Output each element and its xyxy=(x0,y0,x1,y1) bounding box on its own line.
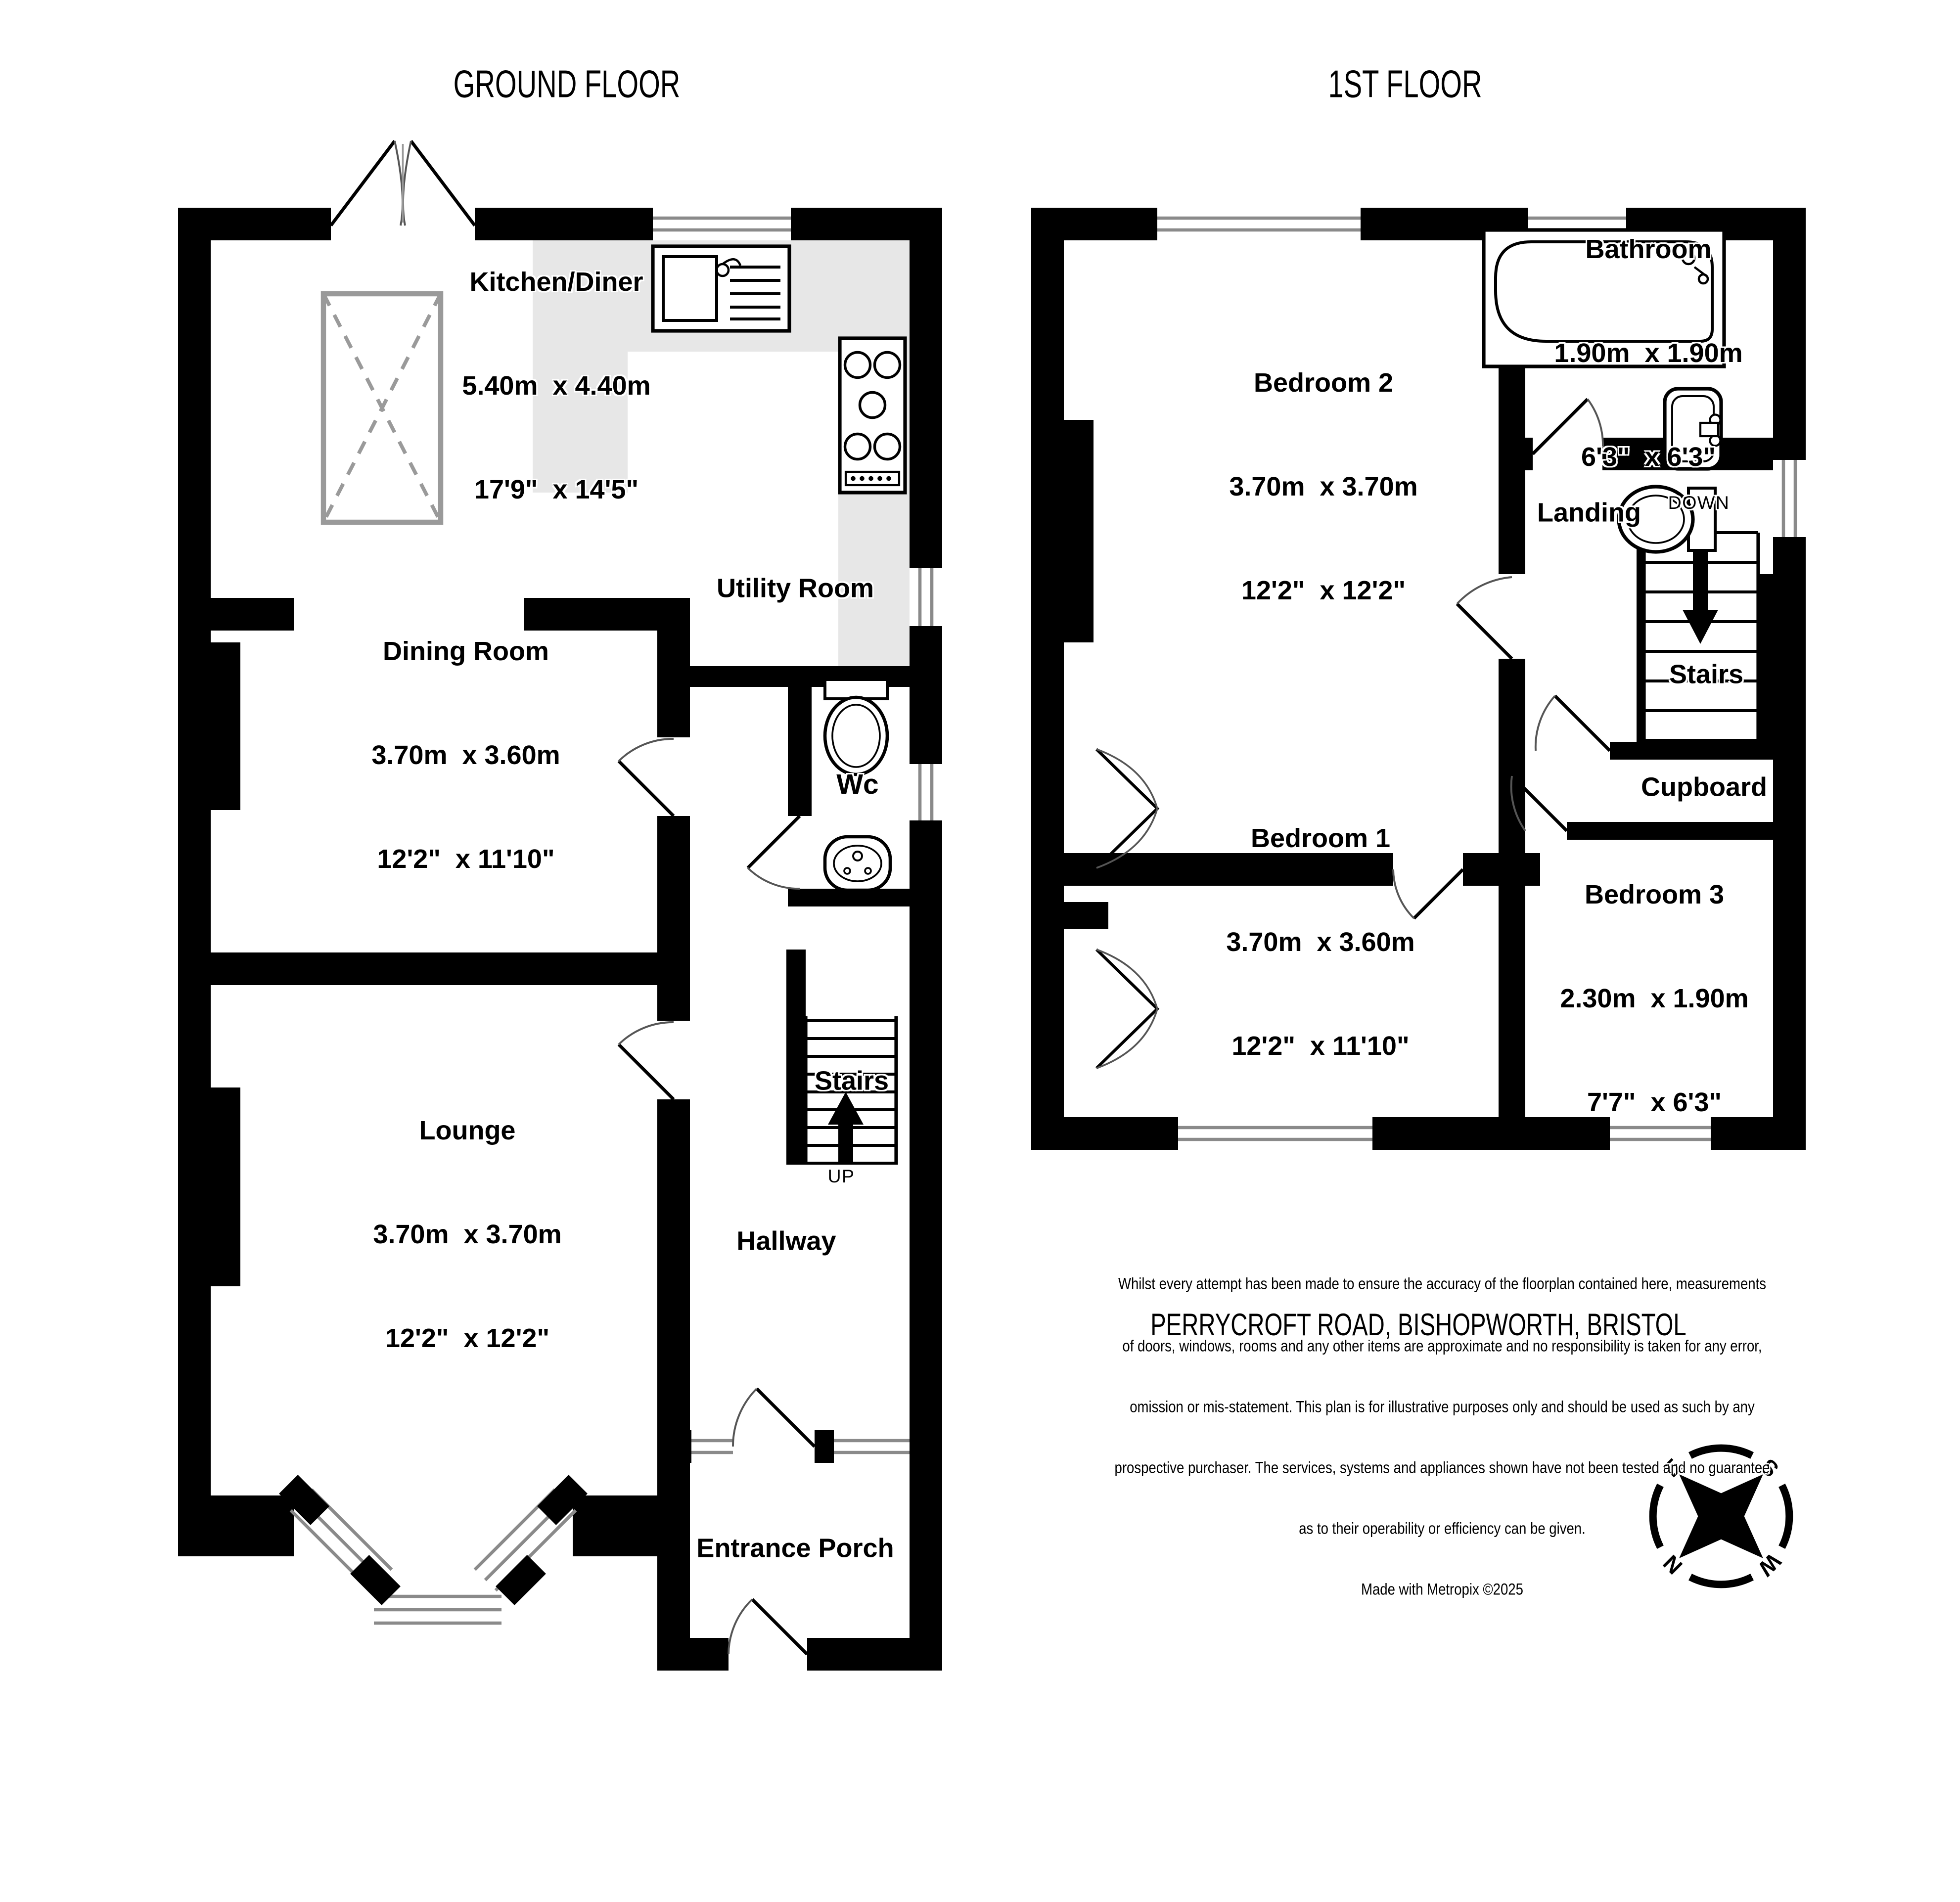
chimney-breast xyxy=(1064,420,1094,642)
window xyxy=(1773,460,1806,537)
utility-room-label: Utility Room xyxy=(717,574,874,605)
room-name: Dining Room xyxy=(371,634,560,669)
wall xyxy=(1031,208,1064,1150)
door-front xyxy=(729,1599,807,1654)
window xyxy=(653,208,791,240)
wc-basin xyxy=(825,837,890,890)
wall xyxy=(910,626,942,764)
wall xyxy=(657,1638,729,1671)
wall xyxy=(178,1495,294,1556)
wall xyxy=(1031,1117,1178,1150)
room-name: Lounge xyxy=(373,1114,561,1148)
chimney-breast xyxy=(211,642,240,810)
room-name: Kitchen/Diner xyxy=(462,265,650,300)
door-wc xyxy=(748,816,800,889)
wall xyxy=(788,687,812,816)
room-imperial: 7'7" x 6'3" xyxy=(1560,1087,1748,1121)
disclaimer: Whilst every attempt has been made to en… xyxy=(1115,1235,1770,1622)
wall xyxy=(910,208,942,568)
wc-toilet xyxy=(825,679,887,774)
room-name: Bedroom 3 xyxy=(1560,878,1748,912)
bay-window xyxy=(279,1475,588,1629)
wall xyxy=(211,598,294,631)
stairs-gf-label: Stairs xyxy=(815,1066,889,1097)
bedroom2-label: Bedroom 2 3.70m x 3.70m 12'2" x 12'2" xyxy=(1229,297,1417,644)
stairs-up-label: UP xyxy=(827,1166,855,1187)
kitchen-sink xyxy=(653,246,789,331)
door-cupboard xyxy=(1536,696,1610,751)
stairs-down-label: DOWN xyxy=(1668,493,1730,513)
wall xyxy=(211,952,690,985)
wall xyxy=(1499,470,1525,574)
wall xyxy=(1758,574,1773,760)
disclaimer-line: prospective purchaser. The services, sys… xyxy=(1115,1459,1770,1480)
entrance-porch-label: Entrance Porch xyxy=(696,1534,894,1565)
window xyxy=(1157,208,1361,240)
room-metric: 2.30m x 1.90m xyxy=(1560,982,1748,1017)
ground-floor-title: GROUND FLOOR xyxy=(454,62,681,108)
disclaimer-line: of doors, windows, rooms and any other i… xyxy=(1115,1337,1770,1358)
door-lounge xyxy=(619,1022,674,1099)
window xyxy=(910,764,942,820)
wall xyxy=(786,950,806,1165)
wc-label: Wc xyxy=(836,770,879,803)
room-imperial: 6'3" x 6'3" xyxy=(1554,441,1742,476)
stairs-ff-label: Stairs xyxy=(1669,660,1743,691)
room-imperial: 12'2" x 11'10" xyxy=(371,843,560,878)
room-metric: 3.70m x 3.60m xyxy=(1226,926,1414,960)
door-hallway-porch xyxy=(733,1389,815,1447)
chimney-breast xyxy=(1064,902,1108,929)
metropix-credit: Made with Metropix ©2025 xyxy=(1115,1581,1770,1601)
disclaimer-line: omission or mis-statement. This plan is … xyxy=(1115,1398,1770,1418)
wall xyxy=(573,1495,657,1556)
bedroom1-label: Bedroom 1 3.70m x 3.60m 12'2" x 11'10" xyxy=(1226,752,1414,1099)
wall xyxy=(1463,853,1540,886)
wall xyxy=(807,1638,942,1671)
room-metric: 3.70m x 3.70m xyxy=(1229,470,1417,505)
landing-label: Landing xyxy=(1537,498,1641,529)
skylight xyxy=(323,294,441,522)
wall xyxy=(657,816,690,1021)
wall xyxy=(178,208,211,1556)
wall xyxy=(1499,886,1525,1117)
wall xyxy=(657,1430,691,1463)
wall xyxy=(1773,208,1806,460)
wardrobe-doors-bedroom1 xyxy=(1096,950,1157,1068)
wardrobe-doors-bedroom2 xyxy=(1096,749,1157,868)
wall xyxy=(815,1430,834,1463)
room-name: Bedroom 1 xyxy=(1226,821,1414,856)
first-floor-title: 1ST FLOOR xyxy=(1328,62,1482,108)
room-metric: 1.90m x 1.90m xyxy=(1554,337,1742,371)
window xyxy=(834,1430,910,1463)
wall xyxy=(1610,742,1773,760)
french-doors xyxy=(331,141,475,226)
hob xyxy=(840,338,905,493)
window xyxy=(1178,1117,1372,1150)
wall xyxy=(1773,537,1806,1150)
room-imperial: 12'2" x 12'2" xyxy=(373,1322,561,1357)
window xyxy=(910,568,942,626)
stairs-down xyxy=(1644,533,1758,760)
lounge-label: Lounge 3.70m x 3.70m 12'2" x 12'2" xyxy=(373,1044,561,1392)
door-dining xyxy=(619,739,674,816)
bathroom-label: Bathroom 1.90m x 1.90m 6'3" x 6'3" xyxy=(1554,163,1742,510)
bedroom3-label: Bedroom 3 2.30m x 1.90m 7'7" x 6'3" xyxy=(1560,809,1748,1156)
floorplan-page: N E S W GROUND FLOOR 1ST FLOOR Kitchen/D… xyxy=(0,0,1960,1902)
disclaimer-line: as to their operability or efficiency ca… xyxy=(1115,1520,1770,1540)
window xyxy=(691,1430,733,1463)
room-metric: 3.70m x 3.70m xyxy=(373,1218,561,1253)
room-name: Bedroom 2 xyxy=(1229,366,1417,401)
wall xyxy=(1499,438,1533,470)
room-metric: 5.40m x 4.40m xyxy=(462,369,650,404)
wall xyxy=(1031,208,1157,240)
room-name: Bathroom xyxy=(1554,232,1742,267)
door-bedroom2 xyxy=(1457,577,1512,659)
room-imperial: 17'9" x 14'5" xyxy=(462,474,650,508)
room-imperial: 12'2" x 11'10" xyxy=(1226,1030,1414,1065)
dining-room-label: Dining Room 3.70m x 3.60m 12'2" x 11'10" xyxy=(371,565,560,912)
chimney-breast xyxy=(211,1087,240,1286)
wall xyxy=(910,820,942,1671)
room-metric: 3.70m x 3.60m xyxy=(371,739,560,773)
hallway-label: Hallway xyxy=(736,1226,836,1258)
kitchen-label: Kitchen/Diner 5.40m x 4.40m 17'9" x 14'5… xyxy=(462,196,650,543)
wall xyxy=(657,1099,690,1430)
room-imperial: 12'2" x 12'2" xyxy=(1229,575,1417,609)
disclaimer-line: Whilst every attempt has been made to en… xyxy=(1115,1276,1770,1297)
